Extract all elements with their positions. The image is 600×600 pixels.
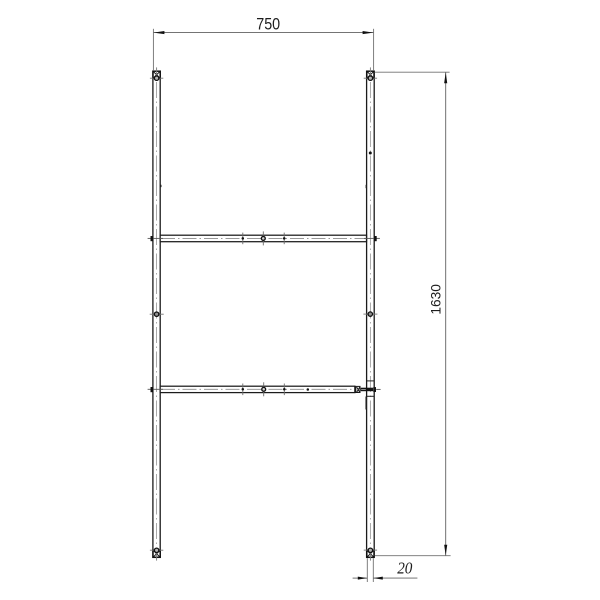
svg-text:20: 20 [397, 558, 413, 577]
svg-text:1630: 1630 [428, 284, 444, 315]
svg-text:750: 750 [256, 16, 280, 34]
